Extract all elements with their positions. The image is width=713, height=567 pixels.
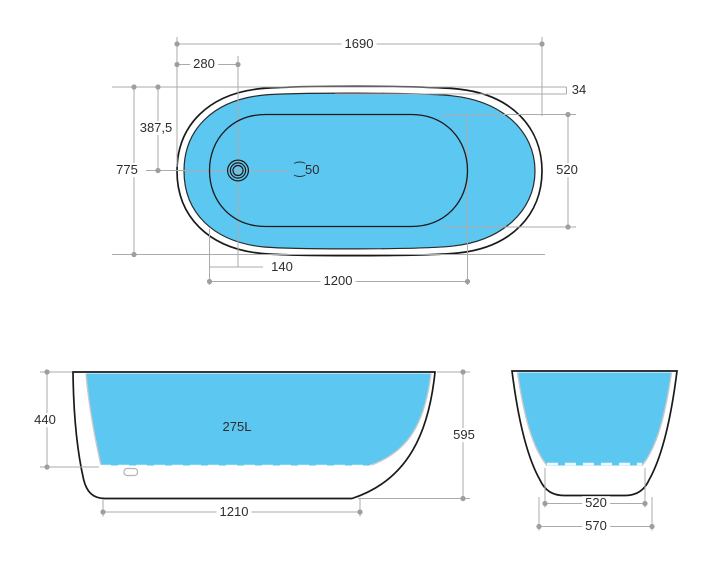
- dim-label-rim-width: 34: [569, 83, 589, 97]
- drawing-svg: [0, 0, 713, 567]
- dim-label-floor-width: 520: [582, 496, 610, 510]
- dim-label-drain-diameter: ⁐50: [295, 163, 320, 177]
- dim-label-drain-basin-end: 140: [268, 260, 296, 274]
- dim-label-overall-width: 775: [113, 163, 141, 177]
- dim-label-overall-height: 595: [450, 428, 478, 442]
- drain-side-icon: [124, 469, 138, 476]
- dim-label-overall-length: 1690: [342, 37, 377, 51]
- dim-label-basin-length: 1200: [321, 274, 356, 288]
- top-view: [112, 37, 576, 285]
- dim-label-base-length: 1210: [217, 505, 252, 519]
- side-view: [40, 369, 470, 516]
- dim-label-drain-offset: 280: [190, 57, 218, 71]
- dim-label-base-width: 570: [582, 519, 610, 533]
- bathtub-technical-drawing: 1690 280 34 387,5 775 ⁐50 520 140 1200 4…: [0, 0, 713, 567]
- dim-label-inner-depth: 440: [31, 413, 59, 427]
- dim-label-drain-side-offset: 387,5: [137, 121, 176, 135]
- water-side-fill: [86, 374, 431, 466]
- dim-label-basin-width: 520: [553, 163, 581, 177]
- water-end-fill: [518, 373, 672, 466]
- capacity-label: 275L: [223, 420, 252, 434]
